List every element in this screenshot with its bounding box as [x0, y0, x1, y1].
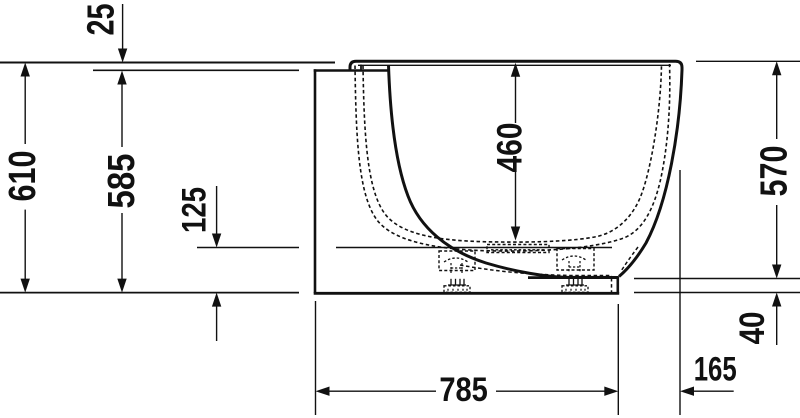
svg-text:165: 165	[694, 350, 737, 388]
svg-text:25: 25	[80, 4, 122, 36]
svg-text:785: 785	[439, 371, 488, 409]
svg-text:125: 125	[176, 187, 214, 233]
svg-text:460: 460	[491, 123, 530, 173]
svg-text:40: 40	[732, 312, 772, 345]
svg-text:570: 570	[754, 146, 796, 197]
svg-text:585: 585	[101, 154, 143, 209]
svg-text:610: 610	[2, 151, 44, 202]
